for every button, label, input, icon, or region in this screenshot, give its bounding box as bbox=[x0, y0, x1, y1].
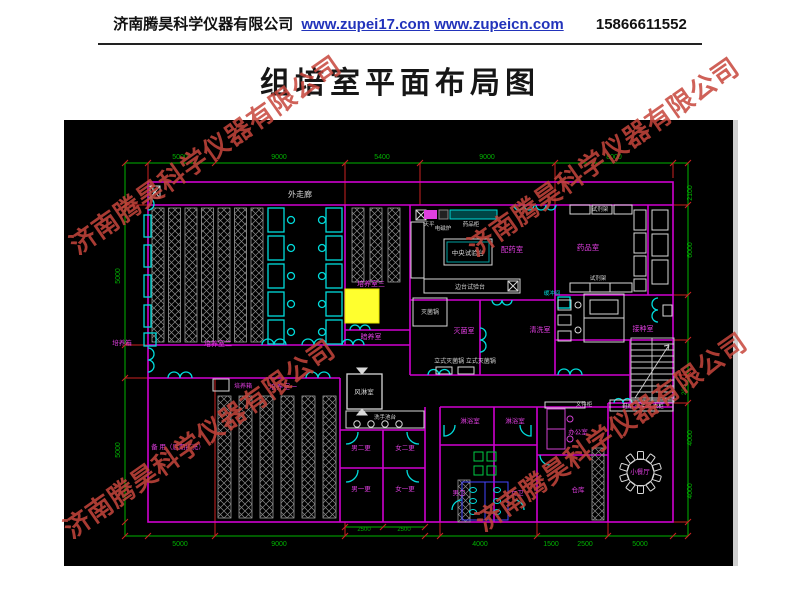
header-rule bbox=[98, 43, 702, 45]
link-zupeicn[interactable]: www.zupeicn.com bbox=[434, 16, 563, 33]
plan-label: 女一更 bbox=[395, 484, 415, 493]
plan-label: 9000 bbox=[271, 541, 287, 548]
plan-label: 男卫 bbox=[453, 489, 467, 497]
plan-label: 暗养室 bbox=[361, 332, 382, 341]
yellow-highlight-box bbox=[345, 289, 379, 323]
plan-label: 男二更 bbox=[351, 444, 371, 452]
plan-label: 电磁炉 bbox=[435, 224, 452, 232]
plan-label: 仓库 bbox=[572, 485, 586, 494]
page-header: 济南腾昊科学仪器有限公司 www.zupei17.com www.zupeicn… bbox=[0, 13, 800, 34]
plan-label: 淋浴室 bbox=[505, 416, 525, 425]
plan-label: 培养箱 bbox=[112, 338, 132, 347]
plan-label: 2500 bbox=[397, 527, 411, 533]
plan-label: 4000 bbox=[472, 541, 488, 548]
plan-label: 办公室 bbox=[568, 427, 588, 436]
link-zupei17[interactable]: www.zupei17.com bbox=[301, 16, 430, 33]
plan-label: 小餐厅 bbox=[630, 467, 650, 476]
plan-label: 培养室一 bbox=[269, 382, 297, 391]
plan-label: 灭菌锅 bbox=[421, 308, 439, 316]
plan-label: 淋浴室 bbox=[460, 416, 480, 425]
canvas-right-edge bbox=[733, 120, 738, 566]
plan-label: 5000 bbox=[172, 154, 188, 161]
plan-label: 培养室三 bbox=[357, 279, 385, 288]
plan-label: 边台试验台 bbox=[455, 283, 485, 291]
plan-label: 8000 bbox=[606, 154, 622, 161]
plan-label: 5000 bbox=[172, 541, 188, 548]
plan-label: 缓冲间 bbox=[544, 289, 561, 297]
plan-label: 女二更 bbox=[395, 443, 415, 452]
plan-label: 2500 bbox=[577, 541, 593, 548]
phone-number: 15866611552 bbox=[596, 16, 687, 33]
plan-label: 中央试验台 bbox=[452, 248, 485, 257]
plan-label: 6000 bbox=[687, 242, 694, 258]
plan-label: 风淋室 bbox=[354, 387, 374, 396]
plan-label: 试剂架 bbox=[590, 274, 607, 282]
plan-label: 4000 bbox=[687, 483, 694, 499]
plan-label: 4000 bbox=[687, 430, 694, 446]
plan-label: 2500 bbox=[357, 527, 371, 533]
plan-label: 女卫 bbox=[511, 488, 525, 497]
plan-label: 试剂架 bbox=[592, 205, 609, 213]
plan-label: 9000 bbox=[479, 154, 495, 161]
plan-label: 备 用（后期扩充） bbox=[151, 442, 205, 451]
plan-label: 药品室 bbox=[577, 242, 600, 252]
plan-label: 灭菌室 bbox=[454, 326, 475, 335]
plan-label: 5400 bbox=[374, 154, 390, 161]
plan-label: 培养室二 bbox=[204, 339, 232, 348]
plan-label: 鞋柜 洗手池 衣柜 bbox=[622, 402, 664, 410]
plan-label: 配药室 bbox=[501, 244, 524, 254]
plan-label: 培养箱 bbox=[234, 382, 252, 390]
plan-label: 1500 bbox=[543, 541, 559, 548]
plan-label: 洗手池台 bbox=[374, 413, 397, 421]
plan-label: 5000 bbox=[632, 541, 648, 548]
plan-label: 立式灭菌锅 立式灭菌锅 bbox=[434, 357, 496, 365]
plan-label: 男一更 bbox=[351, 485, 371, 493]
plan-label: 接种室 bbox=[633, 324, 654, 333]
page-title: 组培室平面布局图 bbox=[0, 58, 800, 102]
plan-label: 天平 bbox=[423, 221, 435, 228]
plan-label: 5000 bbox=[115, 268, 122, 284]
plan-label: 5000 bbox=[115, 442, 122, 458]
plan-label: 2100 bbox=[687, 185, 694, 201]
plan-label: 清洗室 bbox=[530, 325, 551, 334]
plan-label: 药品柜 bbox=[463, 220, 480, 228]
plan-label: 文件柜 bbox=[576, 400, 593, 408]
company-name: 济南腾昊科学仪器有限公司 bbox=[113, 16, 293, 33]
plan-label: 200 bbox=[682, 384, 688, 395]
plan-background bbox=[64, 120, 736, 566]
plan-label: 9000 bbox=[271, 154, 287, 161]
plan-label: 外走廊 bbox=[288, 189, 312, 199]
